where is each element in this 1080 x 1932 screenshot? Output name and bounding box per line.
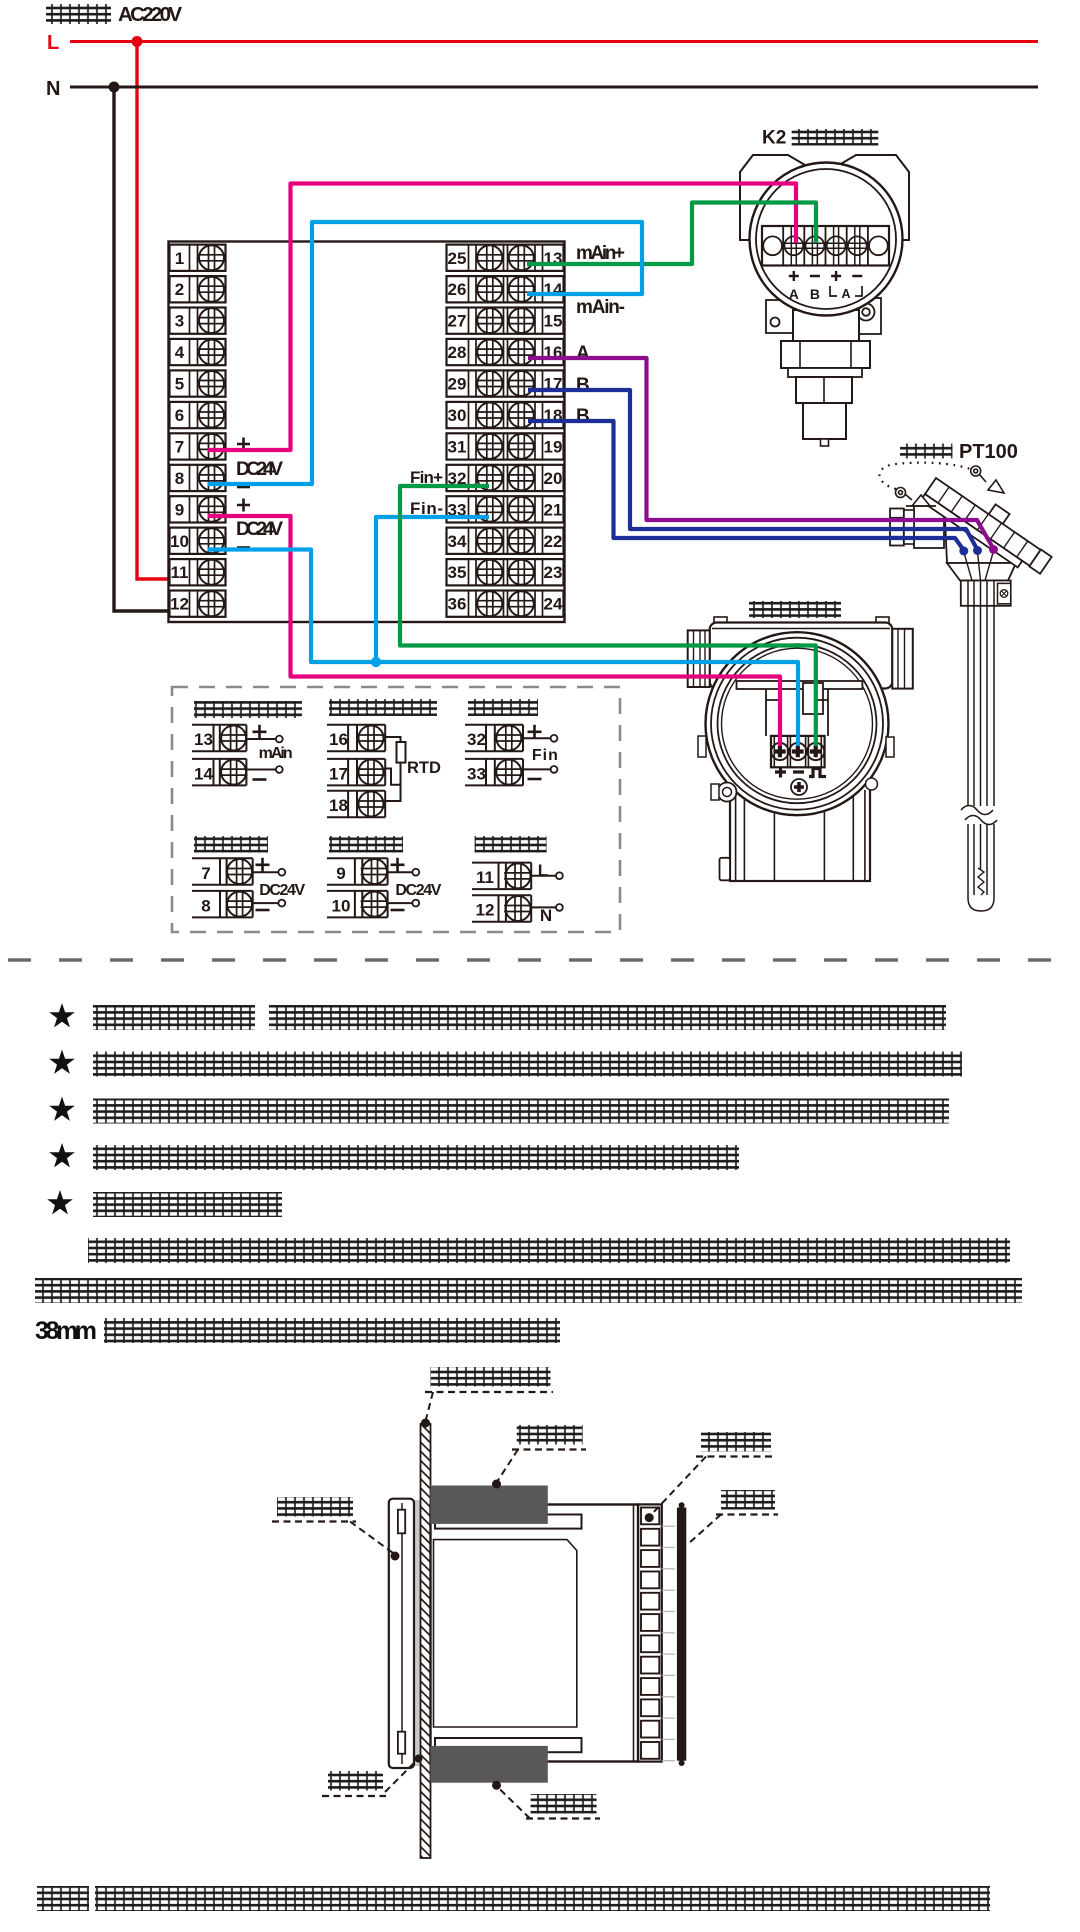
svg-text:32: 32 bbox=[467, 730, 486, 749]
svg-text:5: 5 bbox=[175, 375, 184, 394]
svg-text:12: 12 bbox=[476, 901, 495, 920]
svg-text:18: 18 bbox=[329, 796, 348, 815]
svg-text:20: 20 bbox=[544, 469, 563, 488]
svg-text:A: A bbox=[789, 286, 799, 302]
svg-text:Fin: Fin bbox=[532, 747, 558, 764]
svg-text:14: 14 bbox=[544, 280, 563, 299]
svg-text:N: N bbox=[46, 78, 60, 100]
svg-text:DC24V: DC24V bbox=[259, 882, 305, 899]
svg-text:N: N bbox=[540, 906, 552, 925]
svg-text:21: 21 bbox=[544, 500, 563, 519]
svg-text:L: L bbox=[47, 32, 59, 54]
svg-text:36: 36 bbox=[448, 595, 467, 614]
svg-text:B: B bbox=[576, 406, 590, 427]
svg-text:A: A bbox=[576, 343, 590, 364]
svg-text:14: 14 bbox=[194, 764, 213, 783]
svg-text:9: 9 bbox=[175, 500, 184, 519]
svg-text:34: 34 bbox=[448, 532, 467, 551]
svg-text:K2: K2 bbox=[762, 128, 786, 149]
svg-text:8: 8 bbox=[175, 469, 184, 488]
svg-text:26: 26 bbox=[448, 280, 467, 299]
svg-text:31: 31 bbox=[448, 437, 467, 456]
svg-text:17: 17 bbox=[329, 764, 348, 783]
svg-text:6: 6 bbox=[175, 406, 184, 425]
svg-text:PT100: PT100 bbox=[959, 441, 1018, 463]
svg-text:16: 16 bbox=[329, 730, 348, 749]
svg-text:A: A bbox=[841, 287, 850, 301]
svg-text:7: 7 bbox=[201, 864, 210, 883]
svg-text:10: 10 bbox=[170, 532, 189, 551]
svg-text:AC220V: AC220V bbox=[118, 3, 182, 26]
svg-text:30: 30 bbox=[448, 406, 467, 425]
svg-text:1: 1 bbox=[175, 249, 184, 268]
svg-text:10: 10 bbox=[332, 896, 351, 915]
svg-text:L: L bbox=[538, 861, 548, 880]
svg-text:8: 8 bbox=[201, 896, 210, 915]
svg-text:15: 15 bbox=[544, 312, 563, 331]
svg-text:23: 23 bbox=[544, 563, 563, 582]
svg-text:mAin-: mAin- bbox=[576, 297, 625, 318]
svg-text:3: 3 bbox=[175, 312, 184, 331]
svg-text:11: 11 bbox=[476, 868, 494, 887]
svg-text:28: 28 bbox=[448, 343, 467, 362]
svg-text:RTD: RTD bbox=[407, 759, 441, 777]
svg-text:B: B bbox=[810, 286, 820, 302]
svg-text:11: 11 bbox=[171, 563, 189, 582]
svg-text:2: 2 bbox=[175, 280, 184, 299]
svg-text:7: 7 bbox=[175, 437, 184, 456]
svg-text:9: 9 bbox=[336, 864, 345, 883]
svg-text:DC24V: DC24V bbox=[395, 882, 441, 899]
svg-text:DC24V: DC24V bbox=[236, 458, 283, 480]
svg-text:12: 12 bbox=[170, 595, 189, 614]
svg-text:33: 33 bbox=[467, 764, 486, 783]
svg-text:35: 35 bbox=[448, 563, 467, 582]
svg-text:mAin+: mAin+ bbox=[576, 243, 625, 264]
svg-text:27: 27 bbox=[448, 312, 467, 331]
svg-text:19: 19 bbox=[544, 437, 563, 456]
svg-text:25: 25 bbox=[448, 249, 467, 268]
svg-text:22: 22 bbox=[544, 532, 563, 551]
svg-text:13: 13 bbox=[194, 730, 213, 749]
svg-text:24: 24 bbox=[544, 595, 563, 614]
svg-text:B: B bbox=[576, 375, 590, 396]
svg-text:4: 4 bbox=[175, 343, 185, 362]
svg-text:mAin: mAin bbox=[259, 745, 293, 762]
svg-text:38mm: 38mm bbox=[35, 1317, 97, 1345]
svg-text:DC24V: DC24V bbox=[236, 518, 283, 540]
svg-text:29: 29 bbox=[448, 375, 467, 394]
